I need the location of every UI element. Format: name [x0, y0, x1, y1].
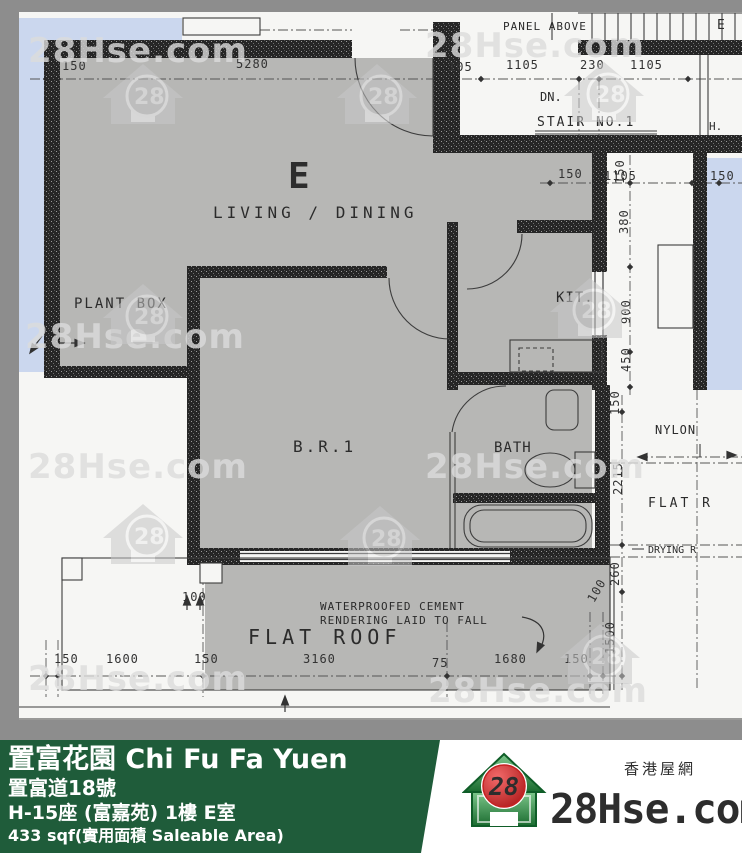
brand-tagline: 香港屋網 [624, 760, 696, 778]
svg-text:28: 28 [581, 299, 612, 324]
note-waterproof-1: WATERPROOFED CEMENT [320, 600, 465, 613]
brand-site-name: 28Hse.com [550, 785, 742, 833]
note-waterproof-2: RENDERING LAID TO FALL [320, 614, 488, 627]
svg-text:28: 28 [368, 85, 399, 110]
svg-text:28: 28 [134, 525, 165, 550]
unit-info: H-15座 (富嘉苑) 1樓 E室 [8, 801, 348, 825]
label-drying: DRYING R [648, 545, 697, 556]
room-label-flat-roof: FLAT ROOF [248, 625, 401, 649]
label-nylon: NYLON [655, 423, 696, 437]
label-h-mark: H. [709, 120, 722, 133]
svg-text:28: 28 [371, 527, 402, 552]
floorplan-page: E LIVING / DINING PLANT BOX B.R.1 BATH K… [0, 0, 742, 853]
logo-number: 28 [488, 772, 519, 801]
svg-text:150: 150 [608, 390, 622, 415]
label-flat-r: FLAT R [648, 496, 713, 511]
svg-text:380: 380 [617, 209, 631, 234]
area-info: 433 sqf(實用面積 Saleable Area) [8, 825, 348, 847]
house-icon: 28 [464, 754, 544, 826]
svg-text:28Hse.com: 28Hse.com [28, 31, 248, 71]
svg-text:150: 150 [558, 167, 583, 181]
svg-text:150: 150 [710, 169, 735, 183]
svg-text:28: 28 [134, 85, 165, 110]
room-label-living: LIVING / DINING [213, 203, 418, 222]
28hse-logo: 28 28Hse.com 香港屋網 [462, 748, 742, 848]
svg-text:75: 75 [432, 656, 448, 670]
listing-info: 置富花園 Chi Fu Fa Yuen 置富道18號 H-15座 (富嘉苑) 1… [8, 744, 348, 847]
svg-text:3160: 3160 [303, 652, 336, 666]
estate-name: 置富花園 Chi Fu Fa Yuen [8, 744, 348, 776]
footer-bar: 置富花園 Chi Fu Fa Yuen 置富道18號 H-15座 (富嘉苑) 1… [0, 740, 742, 853]
svg-text:28: 28 [595, 83, 626, 108]
svg-text:28Hse.com: 28Hse.com [28, 659, 248, 699]
svg-text:450: 450 [619, 347, 633, 372]
label-e-partial: E [717, 18, 725, 33]
estate-address: 置富道18號 [8, 776, 348, 801]
svg-text:28: 28 [591, 645, 622, 670]
svg-text:28: 28 [134, 305, 165, 330]
svg-text:28Hse.com: 28Hse.com [28, 447, 248, 487]
svg-text:150: 150 [613, 159, 627, 184]
svg-text:260: 260 [608, 561, 622, 586]
unit-label: E [288, 156, 310, 197]
svg-text:1680: 1680 [494, 652, 527, 666]
label-dn: DN. [540, 90, 562, 104]
svg-text:28Hse.com: 28Hse.com [425, 447, 645, 487]
room-label-bedroom: B.R.1 [293, 437, 356, 456]
wall-dim-100: 100 [182, 590, 207, 604]
svg-text:28Hse.com: 28Hse.com [425, 26, 645, 66]
floorplan-drawing: E LIVING / DINING PLANT BOX B.R.1 BATH K… [0, 0, 742, 741]
